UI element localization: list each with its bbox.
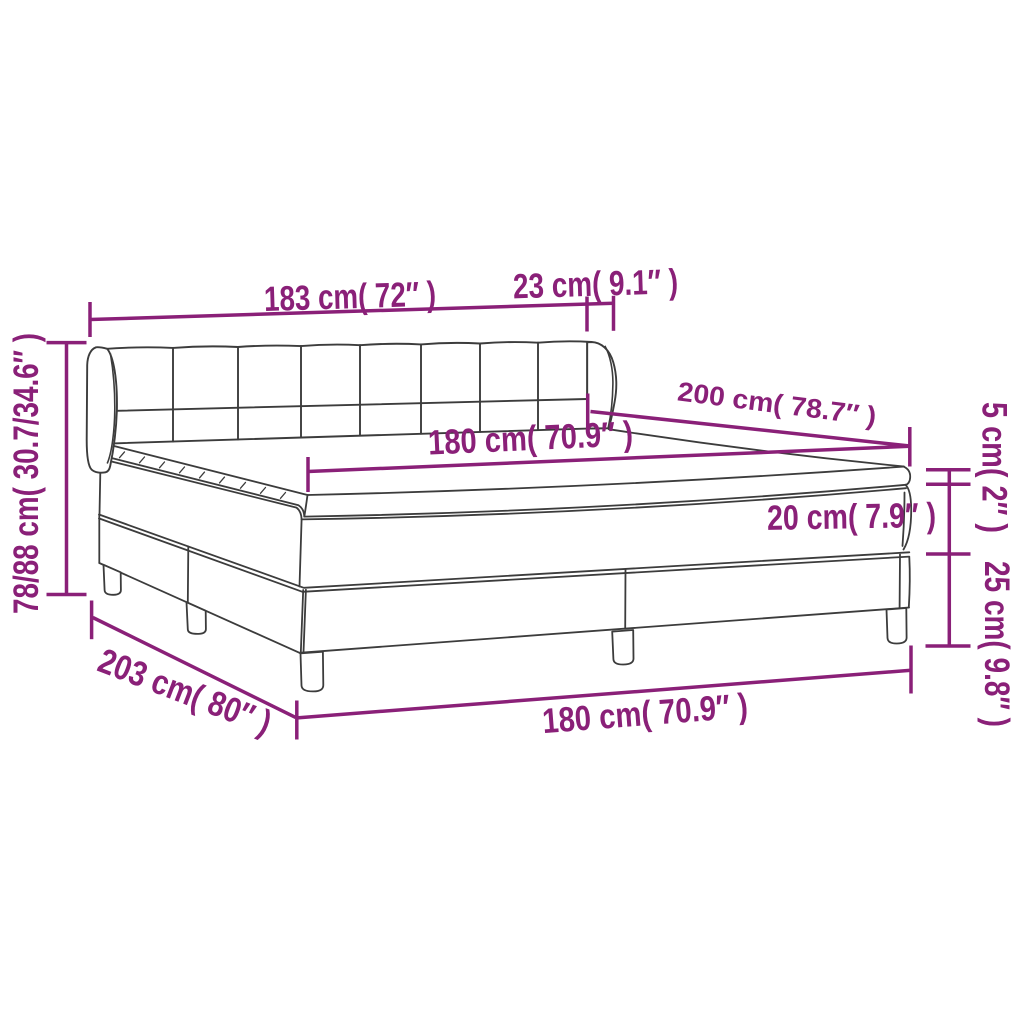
svg-text:20 cm( 7.9″ ): 20 cm( 7.9″ ): [767, 496, 937, 538]
svg-text:25 cm( 9.8″ ): 25 cm( 9.8″ ): [977, 561, 1016, 727]
svg-text:5 cm( 2″ ): 5 cm( 2″ ): [975, 402, 1014, 533]
svg-text:183 cm( 72″ ): 183 cm( 72″ ): [263, 275, 436, 319]
svg-text:23 cm( 9.1″ ): 23 cm( 9.1″ ): [512, 262, 678, 306]
svg-text:78/88 cm( 30.7/34.6″ ): 78/88 cm( 30.7/34.6″ ): [7, 333, 46, 614]
